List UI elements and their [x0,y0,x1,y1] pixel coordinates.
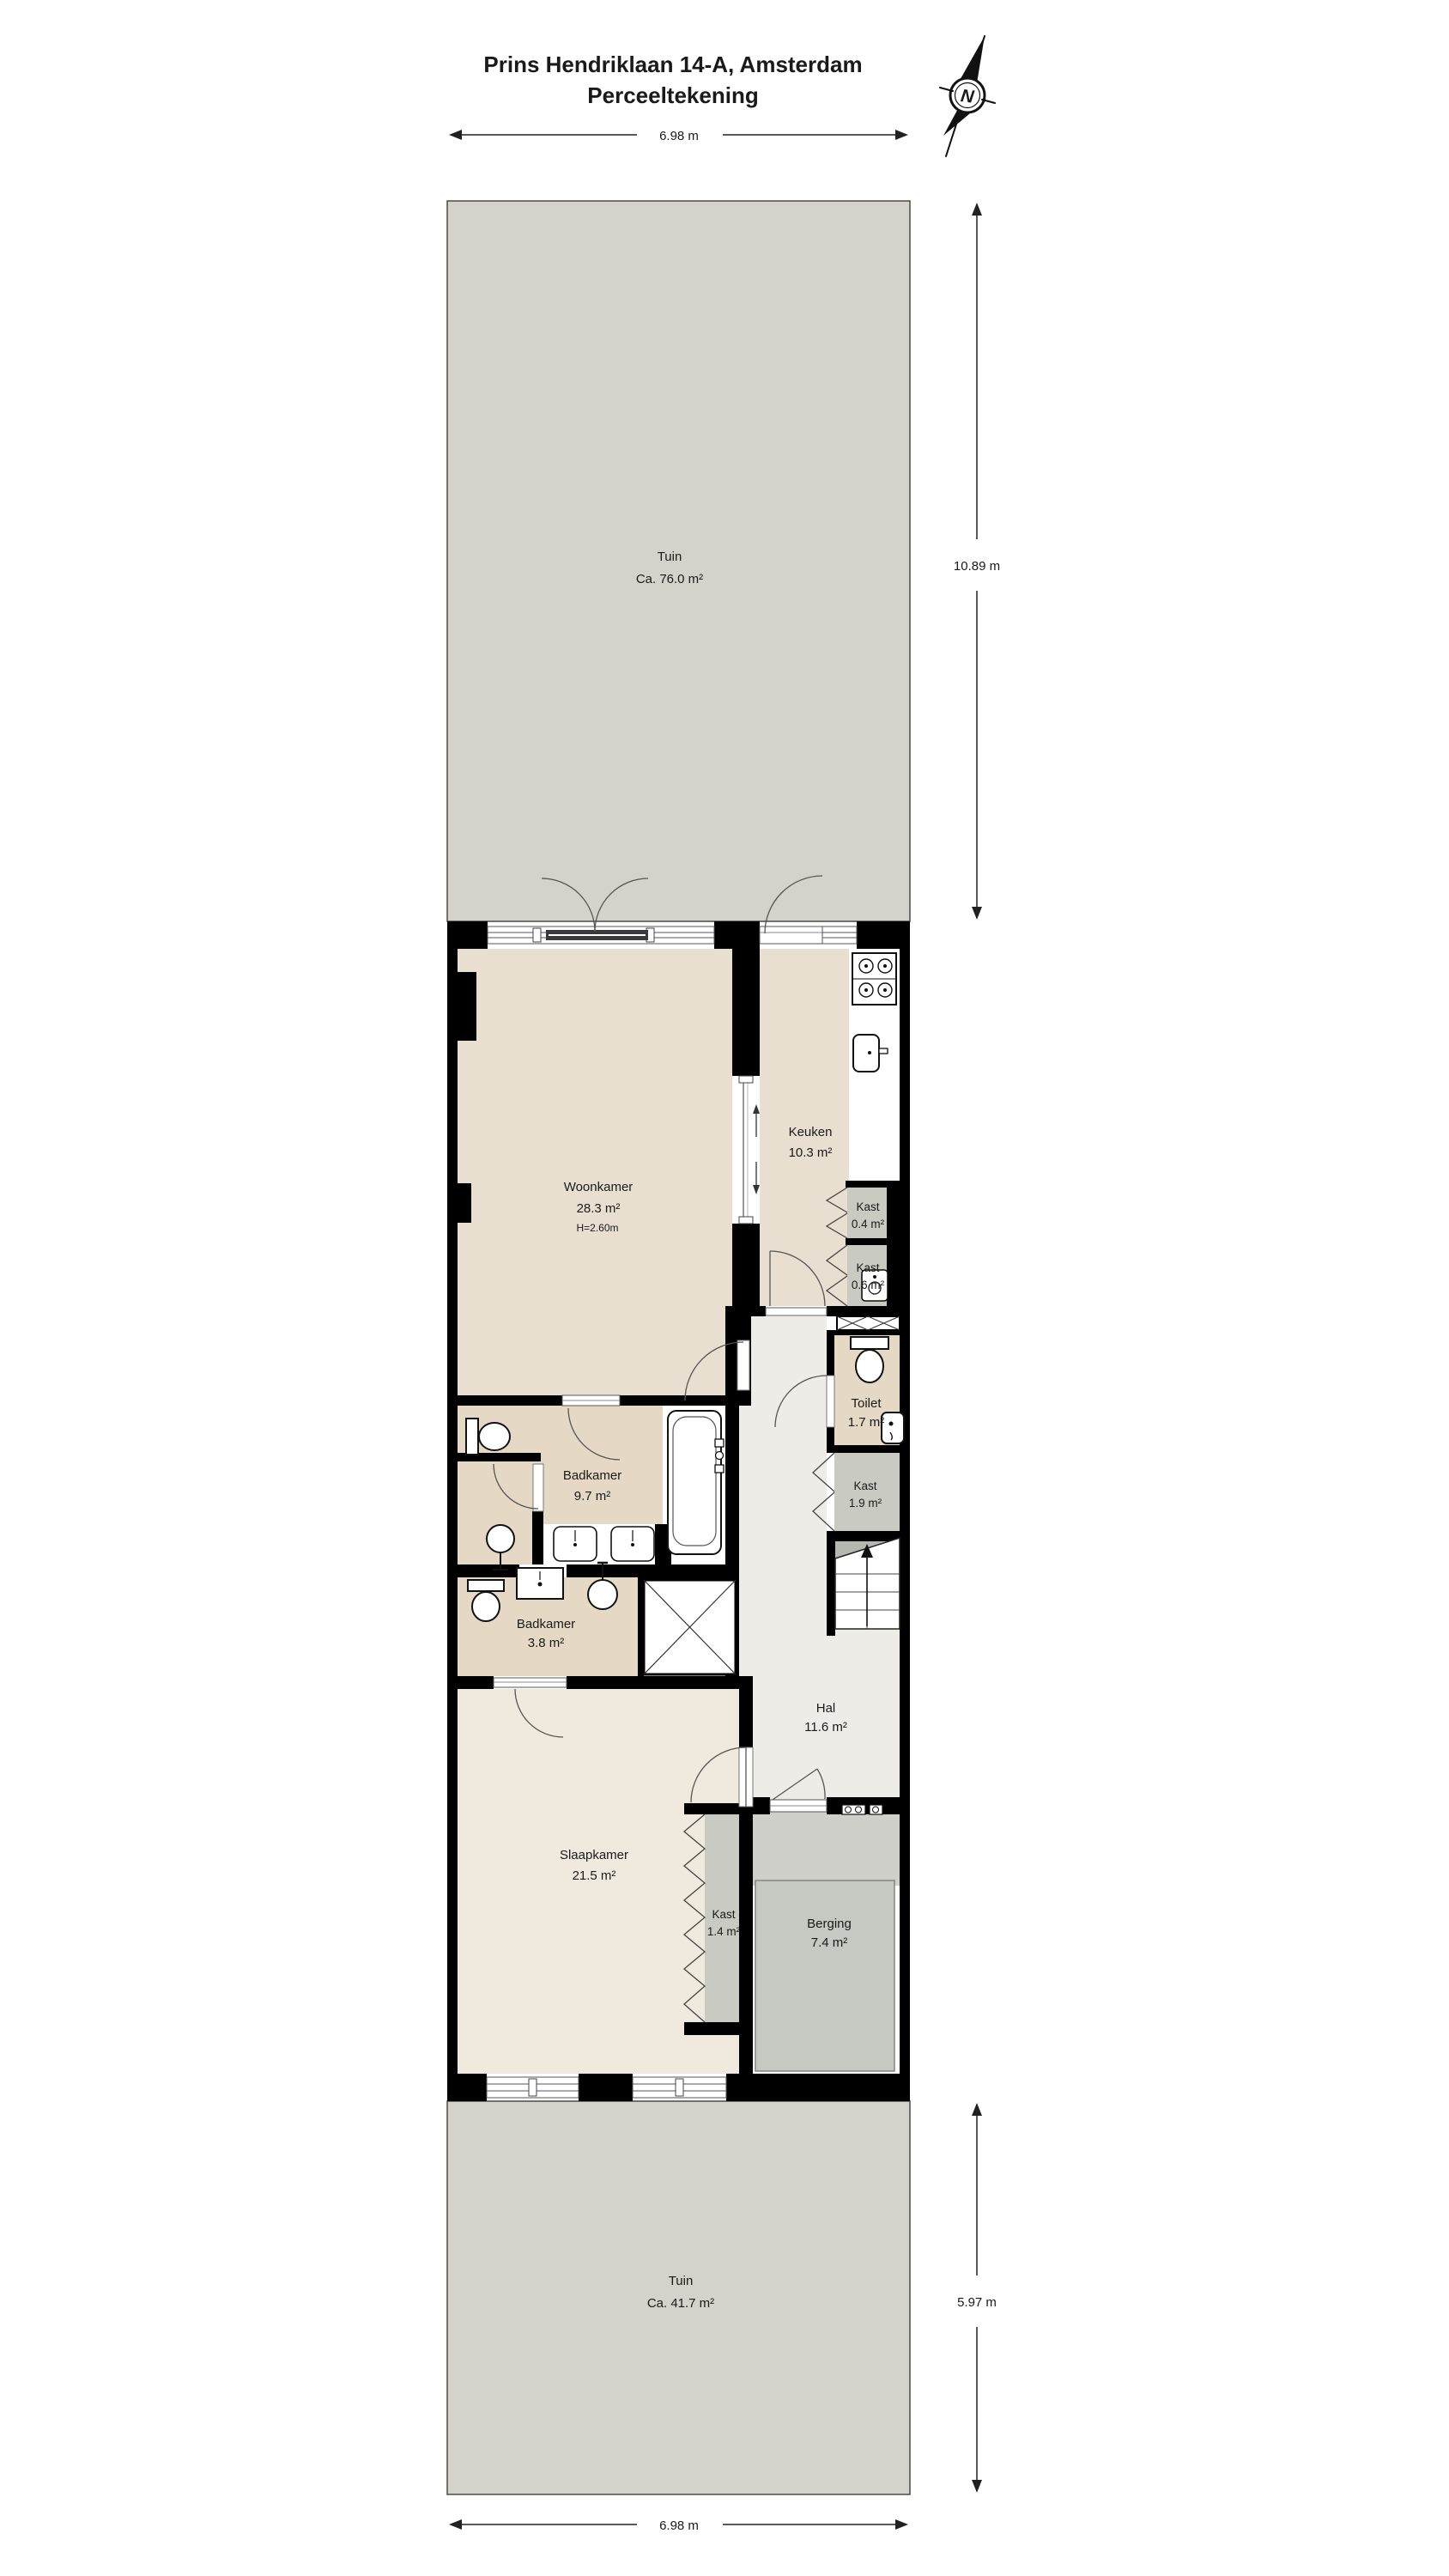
meter-icons [842,1805,882,1814]
floorplan-drawing: Prins Hendriklaan 14-A, Amsterdam Percee… [0,0,1449,2576]
kast06-name: Kast [856,1261,879,1274]
woonkamer-height: H=2.60m [576,1222,618,1234]
berging-entry-floor [753,1803,900,1886]
dimension-right-bottom: 5.97 m [957,2103,997,2493]
slaapkamer-name: Slaapkamer [560,1848,628,1862]
corner-sink-icon [882,1413,904,1443]
shower-box [644,1580,736,1674]
garden-bottom-name: Tuin [669,2274,694,2288]
bathtub-icon [668,1411,724,1554]
vanity-sink-right-icon [611,1527,654,1561]
north-compass-icon: N [940,36,995,156]
garden-top: Tuin Ca. 76.0 m² [447,201,910,921]
garden-top-area: Ca. 76.0 m² [636,572,703,586]
badkamer97-name: Badkamer [563,1468,621,1483]
keuken-garden-window [822,927,857,944]
pocket-door-woonkamer-keuken [732,1076,760,1224]
dimension-bottom: 6.98 m [449,2518,908,2533]
toilet-area: 1.7 m² [848,1415,885,1430]
stove-icon [852,953,896,1005]
badkamer38-area: 3.8 m² [528,1636,565,1650]
slaapkamer-window-left [487,2077,579,2098]
dimension-garden-bottom-label: 5.97 m [957,2295,997,2310]
vanity-sink-left-icon [554,1527,597,1561]
floorplan-page: Prins Hendriklaan 14-A, Amsterdam Percee… [0,0,1449,2576]
badkamer97-area: 9.7 m² [574,1489,611,1504]
keuken-area: 10.3 m² [789,1145,833,1160]
dimension-right-top: 10.89 m [954,203,1000,920]
hal-name: Hal [816,1701,836,1716]
berging-name: Berging [807,1917,852,1931]
dimension-top-label: 6.98 m [659,129,699,143]
kast04-area: 0.4 m² [852,1218,885,1230]
toilet-name: Toilet [851,1396,882,1411]
kast06-area: 0.6 m² [852,1279,885,1291]
dimension-bottom-label: 6.98 m [659,2518,699,2533]
kast14-name: Kast [712,1908,735,1921]
radiator [837,1316,900,1330]
hal-area: 11.6 m² [804,1720,847,1735]
stairs [835,1538,900,1629]
woonkamer-area: 28.3 m² [577,1201,621,1216]
kast19-name: Kast [853,1479,876,1492]
kast19-area: 1.9 m² [849,1497,882,1510]
berging-area: 7.4 m² [811,1935,848,1950]
badkamer38-name: Badkamer [517,1617,575,1631]
page-subtitle: Perceeltekening [587,82,758,108]
kast14-area: 1.4 m² [707,1925,741,1938]
dimension-garden-top-label: 10.89 m [954,559,1000,574]
garden-top-name: Tuin [658,550,682,564]
keuken-name: Keuken [789,1125,833,1139]
slaapkamer-area: 21.5 m² [573,1868,616,1883]
garden-bottom-area: Ca. 41.7 m² [647,2296,714,2311]
dimension-top: 6.98 m [449,129,908,143]
berging-floor [755,1880,894,2071]
woonkamer-floor [458,949,736,1395]
washbasin-icon-badkamer38 [517,1568,563,1599]
page-title: Prins Hendriklaan 14-A, Amsterdam [483,52,862,77]
slaapkamer-window-right [633,2077,726,2098]
hal-floor-2 [827,1629,900,1803]
woonkamer-name: Woonkamer [564,1180,634,1194]
garden-bottom: Tuin Ca. 41.7 m² [447,2101,910,2494]
kast04-name: Kast [856,1200,879,1213]
woonkamer-garden-window [488,927,714,944]
